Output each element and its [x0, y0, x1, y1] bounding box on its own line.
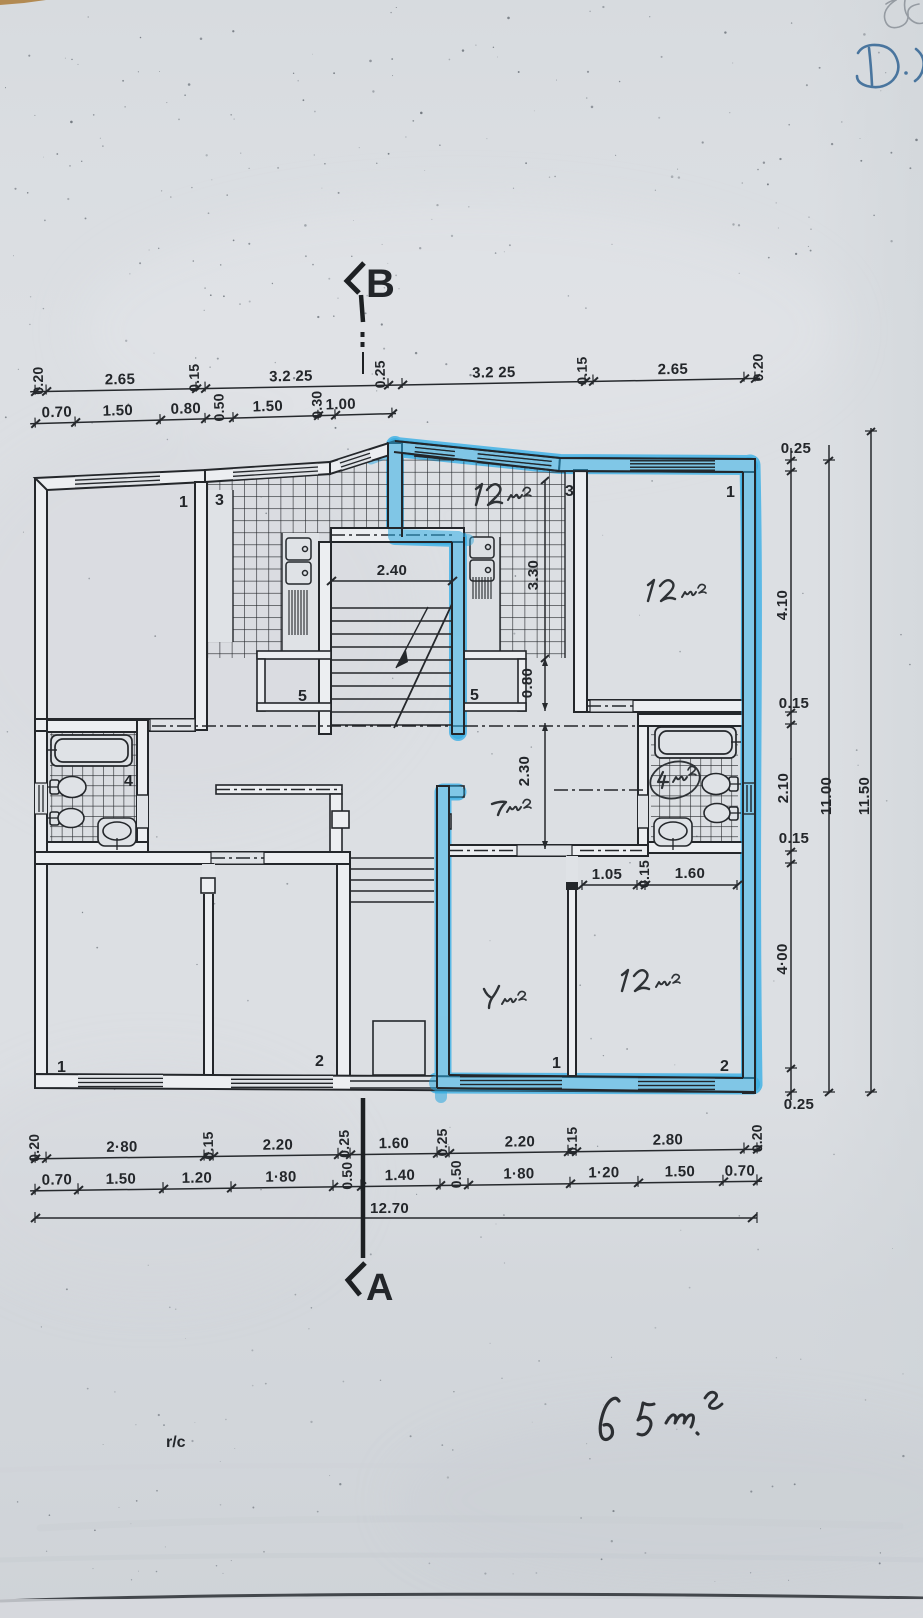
svg-text:0.80: 0.80 [519, 668, 536, 698]
svg-text:r/c: r/c [166, 1434, 186, 1451]
svg-text:2.65: 2.65 [105, 371, 136, 389]
svg-text:3.2 25: 3.2 25 [269, 368, 313, 386]
svg-text:0.50: 0.50 [448, 1160, 464, 1188]
svg-text:2: 2 [315, 1053, 324, 1070]
svg-text:0.15: 0.15 [200, 1131, 216, 1159]
svg-text:0.20: 0.20 [30, 366, 47, 394]
svg-text:1: 1 [726, 484, 735, 501]
svg-text:1: 1 [552, 1055, 561, 1072]
svg-text:1.20: 1.20 [182, 1169, 213, 1186]
svg-text:3: 3 [565, 483, 574, 500]
svg-text:11.50: 11.50 [856, 777, 873, 815]
svg-text:0.50: 0.50 [339, 1162, 355, 1190]
svg-text:1: 1 [179, 494, 188, 511]
svg-text:3: 3 [215, 492, 224, 509]
svg-text:1.40: 1.40 [385, 1167, 416, 1184]
svg-text:5: 5 [470, 687, 479, 704]
svg-text:2.10: 2.10 [775, 773, 792, 803]
svg-text:1.50: 1.50 [252, 398, 283, 416]
svg-text:2.80: 2.80 [653, 1131, 684, 1148]
svg-text:2.65: 2.65 [657, 361, 688, 379]
svg-text:0.25: 0.25 [781, 440, 811, 457]
svg-text:2.40: 2.40 [377, 562, 407, 579]
svg-text:0.70: 0.70 [725, 1162, 756, 1179]
svg-text:2: 2 [720, 1058, 729, 1075]
svg-text:0.20: 0.20 [750, 353, 767, 381]
svg-text:0.15: 0.15 [779, 830, 809, 847]
svg-text:0.70: 0.70 [41, 404, 72, 422]
svg-text:1.50: 1.50 [665, 1163, 696, 1180]
svg-text:0.15: 0.15 [564, 1127, 580, 1155]
svg-text:4.10: 4.10 [774, 590, 791, 620]
svg-text:1.00: 1.00 [325, 396, 356, 414]
svg-text:5: 5 [298, 688, 307, 705]
svg-text:11.00: 11.00 [818, 777, 835, 815]
svg-text:0.70: 0.70 [42, 1171, 73, 1188]
svg-text:1·80: 1·80 [503, 1165, 534, 1182]
svg-text:12.70: 12.70 [370, 1200, 409, 1217]
svg-text:0.15: 0.15 [574, 356, 591, 384]
svg-text:2.20: 2.20 [263, 1136, 294, 1153]
svg-text:0.15: 0.15 [779, 695, 809, 712]
svg-text:0.25: 0.25 [434, 1128, 450, 1156]
svg-text:0.20: 0.20 [26, 1134, 42, 1162]
svg-text:1.60: 1.60 [379, 1135, 410, 1152]
svg-text:1.60: 1.60 [675, 865, 705, 882]
svg-text:0.15: 0.15 [636, 860, 652, 888]
svg-text:0.50: 0.50 [210, 393, 227, 421]
svg-text:0.80: 0.80 [170, 400, 201, 418]
svg-text:0.20: 0.20 [749, 1124, 765, 1152]
svg-text:0.15: 0.15 [186, 364, 203, 392]
svg-text:B: B [366, 262, 395, 306]
svg-text:3.2 25: 3.2 25 [472, 364, 516, 382]
svg-text:2.30: 2.30 [516, 756, 533, 786]
svg-text:4·00: 4·00 [774, 943, 791, 974]
svg-text:0.25: 0.25 [784, 1096, 814, 1113]
svg-text:0.30: 0.30 [308, 390, 325, 418]
svg-text:4: 4 [124, 773, 133, 790]
svg-text:1·80: 1·80 [265, 1168, 296, 1185]
svg-text:1·20: 1·20 [588, 1164, 619, 1181]
svg-text:0.25: 0.25 [372, 360, 389, 388]
svg-text:2·80: 2·80 [106, 1138, 137, 1155]
svg-text:1.05: 1.05 [592, 866, 622, 883]
svg-text:A: A [366, 1267, 393, 1309]
svg-text:1.50: 1.50 [106, 1170, 137, 1187]
svg-text:1.50: 1.50 [102, 402, 133, 420]
svg-text:2.20: 2.20 [505, 1133, 536, 1150]
svg-text:1: 1 [57, 1059, 66, 1076]
svg-text:0.25: 0.25 [336, 1130, 352, 1158]
svg-text:3.30: 3.30 [525, 560, 542, 590]
